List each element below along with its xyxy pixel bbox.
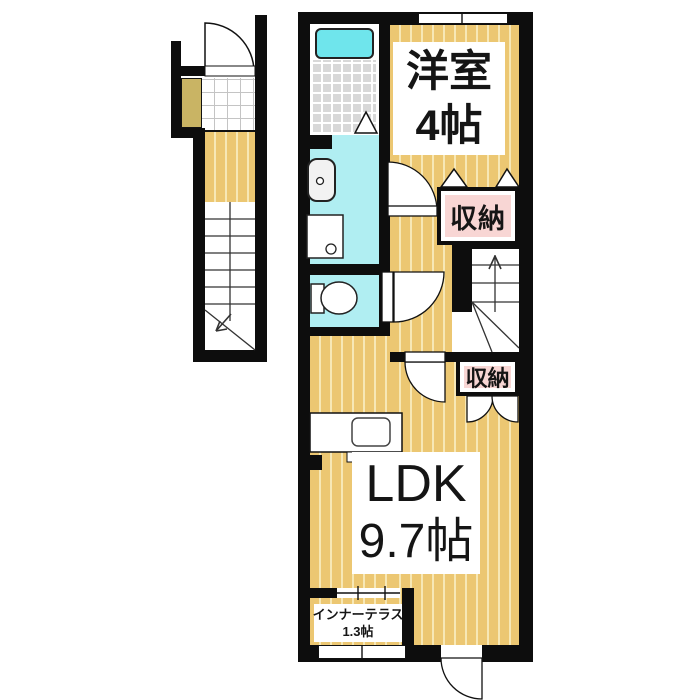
entrance-door-swing-icon xyxy=(205,23,254,72)
closet-double-door-icon xyxy=(492,396,518,422)
symbol-overlay xyxy=(0,0,700,700)
western-room-door-swing-icon xyxy=(388,162,437,211)
inner-terrace-label: インナーテラス 1.3帖 xyxy=(314,604,402,642)
entrance-doorway xyxy=(205,66,255,76)
western-room-name: 洋室 xyxy=(406,45,492,99)
western-room-door-leaf xyxy=(388,206,437,216)
washbasin-drain xyxy=(317,178,324,185)
kitchen-sink xyxy=(352,418,390,446)
stair-steps xyxy=(472,255,519,352)
toilet-bowl xyxy=(321,282,357,314)
western-room-label: 洋室 4帖 xyxy=(393,42,505,155)
ldk-name: LDK xyxy=(365,455,466,513)
closet-double-door-icon xyxy=(467,396,493,422)
closet-folding-door-icon xyxy=(441,169,467,187)
ldk-size: 9.7帖 xyxy=(359,513,474,571)
bath-folding-door-icon xyxy=(355,112,377,133)
toilet-door-leaf xyxy=(382,272,393,322)
annex-stair-steps xyxy=(205,202,255,350)
bathtub xyxy=(316,29,373,58)
washing-machine-dial xyxy=(326,244,336,254)
inner-terrace-size: 1.3帖 xyxy=(342,623,373,640)
sliding-partition-track xyxy=(337,586,400,600)
floorplan-canvas: 収納 収納 xyxy=(0,0,700,700)
ldk-label: LDK 9.7帖 xyxy=(352,452,480,574)
ldk-door-leaf xyxy=(405,352,445,362)
toilet-door-swing-icon xyxy=(394,272,444,322)
inner-terrace-name: インナーテラス xyxy=(313,606,404,623)
main-entry-door-swing-icon xyxy=(441,658,482,699)
western-room-size: 4帖 xyxy=(416,99,483,153)
closet-folding-door-icon xyxy=(496,169,519,187)
washing-machine xyxy=(307,215,343,258)
ldk-door-swing-icon xyxy=(405,362,445,402)
